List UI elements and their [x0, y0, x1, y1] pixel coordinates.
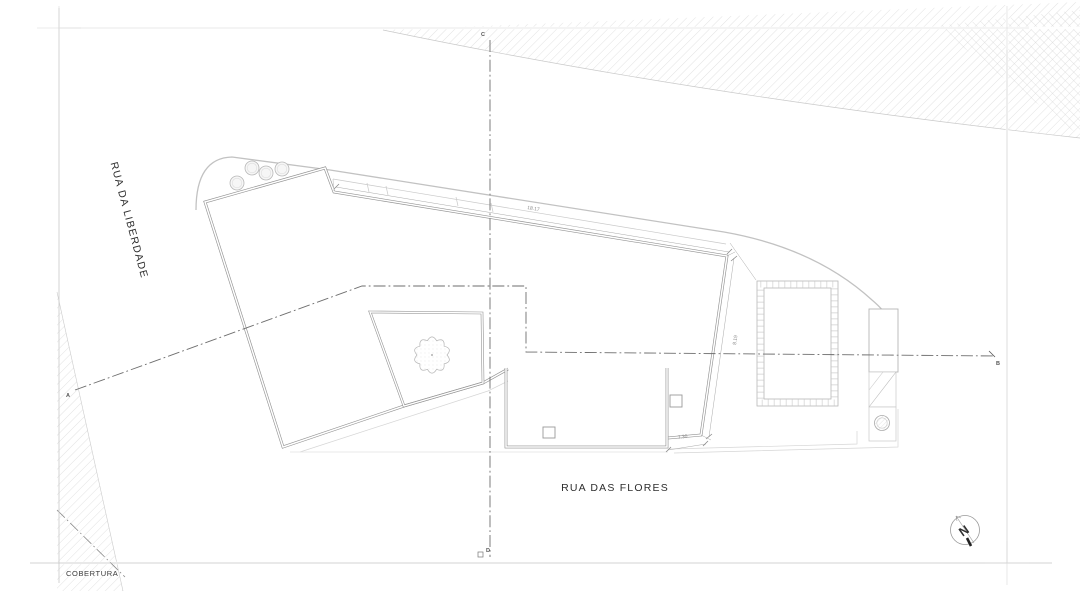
street-label-flores: RUA DAS FLORES	[561, 482, 669, 494]
hatch-area-bottom-left	[40, 292, 130, 591]
section-marker-c: C	[481, 32, 485, 38]
sheet-title: COBERTURA	[66, 569, 118, 578]
lower-wing-outline	[506, 368, 667, 447]
pool	[757, 281, 838, 406]
section-marker-d: D	[486, 548, 490, 554]
section-marker-b: B	[996, 361, 1000, 367]
hatch-area-top-right	[360, 0, 1080, 150]
roof-skylights	[543, 395, 682, 438]
service-structures	[869, 309, 898, 441]
street-label-liberdade: RUA DA LIBERDADE	[108, 161, 151, 280]
dim-bottom: 7.30	[677, 434, 688, 441]
building-roof-outline	[205, 168, 727, 447]
north-arrow: N	[951, 516, 980, 547]
dimension-lines: 18.17 8.19 7.30	[334, 184, 756, 452]
dim-right: 8.19	[732, 335, 739, 346]
roof-plan-svg: 18.17 8.19 7.30 C D A B RUA DA LIBERDADE…	[0, 0, 1080, 600]
section-line-ab: A B	[66, 286, 1000, 399]
courtyard	[370, 312, 483, 406]
section-marker-a: A	[66, 393, 70, 399]
dim-top: 18.17	[527, 205, 541, 213]
section-line-cd: C D	[478, 32, 490, 557]
canopy-roof	[869, 309, 898, 372]
roof-edge-band	[333, 179, 726, 244]
drawing-sheet: 18.17 8.19 7.30 C D A B RUA DA LIBERDADE…	[0, 0, 1080, 600]
